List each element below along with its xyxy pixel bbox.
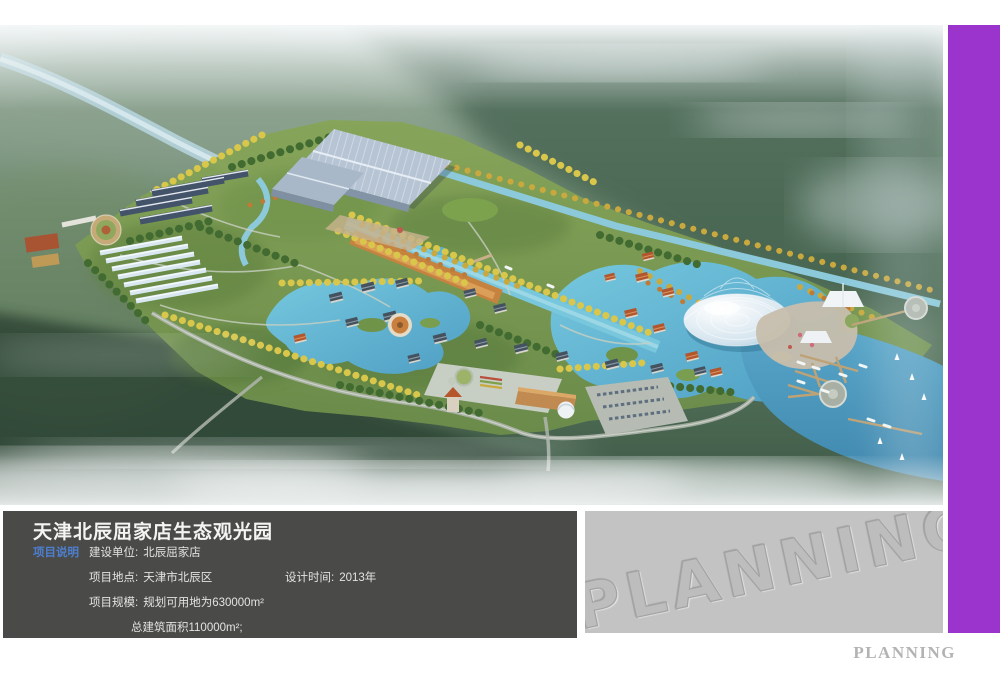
- masterplan-scene: [0, 25, 943, 505]
- presentation-board: 天津北辰屈家店生态观光园 项目说明 建设单位:北辰屈家店 项目地点:天津市北辰区…: [0, 0, 1000, 678]
- scale-value: 规划可用地为630000m²: [143, 597, 264, 609]
- accent-bar: [948, 25, 1000, 633]
- field-builder: 建设单位:北辰屈家店: [89, 544, 201, 560]
- watermark-text: PLANNING: [585, 511, 943, 633]
- scale-label: 项目规模:: [89, 597, 138, 609]
- project-info-panel: 天津北辰屈家店生态观光园 项目说明 建设单位:北辰屈家店 项目地点:天津市北辰区…: [3, 511, 577, 638]
- project-title: 天津北辰屈家店生态观光园: [33, 517, 273, 544]
- aerial-masterplan-rendering: [0, 25, 943, 505]
- location-value: 天津市北辰区: [143, 572, 212, 584]
- round-pavilion: [388, 313, 412, 337]
- field-design-time: 设计时间:2013年: [285, 569, 376, 585]
- builder-value: 北辰屈家店: [143, 547, 201, 559]
- location-label: 项目地点:: [89, 572, 138, 584]
- design-time-value: 2013年: [339, 572, 376, 584]
- total-area-value: 总建筑面积110000m²;: [131, 622, 243, 634]
- footer-brand: PLANNING: [853, 643, 956, 663]
- field-scale: 项目规模:规划可用地为630000m²: [89, 594, 264, 610]
- section-label-project-description: 项目说明: [33, 544, 79, 560]
- circular-plaza: [91, 215, 121, 245]
- builder-label: 建设单位:: [89, 547, 138, 559]
- field-location: 项目地点:天津市北辰区: [89, 569, 212, 585]
- design-time-label: 设计时间:: [285, 572, 334, 584]
- field-total-area: 总建筑面积110000m²;: [131, 619, 243, 635]
- watermark-box: PLANNING: [585, 511, 943, 633]
